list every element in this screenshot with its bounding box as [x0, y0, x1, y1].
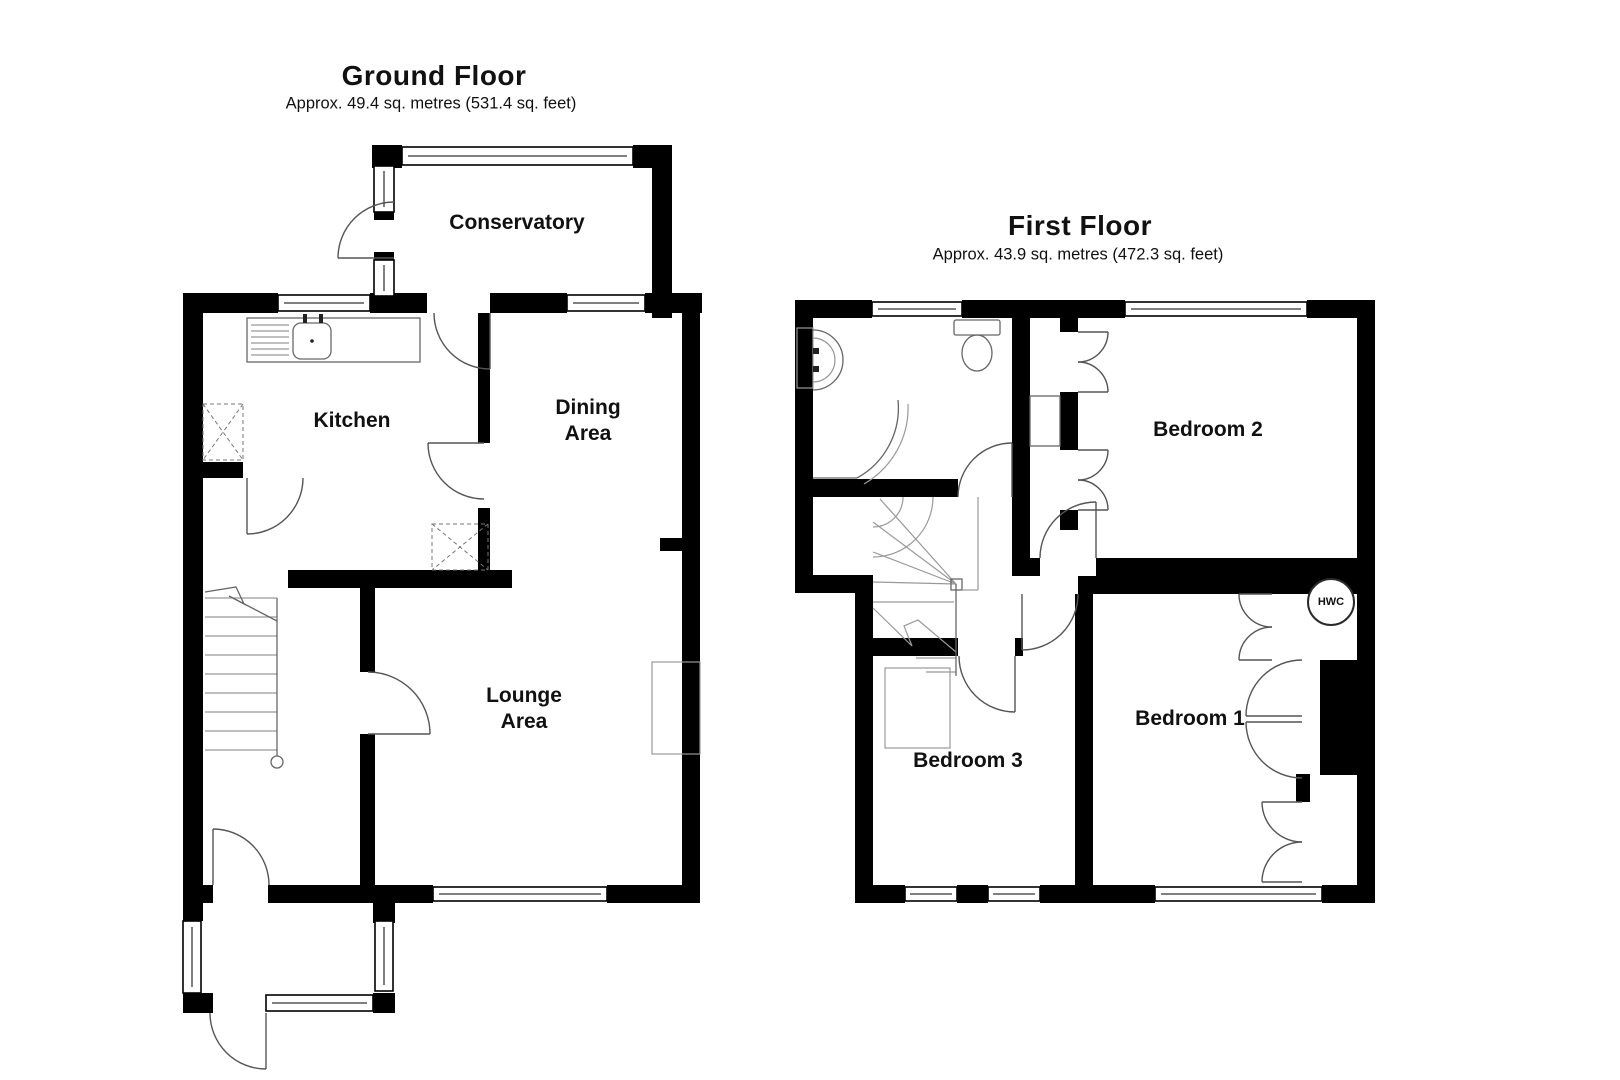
bedroom1-closet-doors — [1246, 660, 1302, 882]
room-label-bedroom-3: Bedroom 3 — [913, 748, 1023, 774]
room-label-dining-area: Dining Area — [555, 395, 620, 448]
hwc-cupboard-doors — [1239, 594, 1272, 660]
ground-floor-stairs — [205, 587, 283, 768]
kitchen-hall-door-arc — [247, 478, 303, 534]
room-label-bedroom-2: Bedroom 2 — [1153, 417, 1263, 443]
bathroom-shower — [813, 400, 908, 484]
bathroom-basin — [813, 330, 843, 390]
bedroom1-door-arc — [1022, 594, 1078, 650]
bedroom3-door-arc — [959, 656, 1015, 712]
ground-floor-title: Ground Floor — [342, 60, 527, 92]
front-entrance-door-arc — [210, 1013, 266, 1069]
room-label-bedroom-1: Bedroom 1 — [1135, 706, 1245, 732]
first-floor-plan — [795, 300, 1375, 903]
hwc-cylinder-icon: HWC — [1307, 578, 1355, 626]
ground-floor-area: Approx. 49.4 sq. metres (531.4 sq. feet) — [286, 95, 577, 114]
room-label-lounge-area: Lounge Area — [486, 683, 562, 736]
first-floor-title: First Floor — [1008, 210, 1152, 242]
floorplan-page: Ground Floor Approx. 49.4 sq. metres (53… — [0, 0, 1620, 1080]
hall-door-arc — [213, 829, 269, 885]
appliance-space-left — [203, 404, 243, 460]
room-label-kitchen: Kitchen — [313, 408, 390, 434]
room-label-conservatory: Conservatory — [449, 210, 584, 236]
floorplan-drawing — [0, 0, 1620, 1080]
lounge-door-arc — [368, 672, 430, 734]
ground-floor-plan — [183, 145, 702, 1069]
kitchen-sink — [247, 314, 420, 362]
bathroom-toilet — [954, 320, 1000, 371]
kitchen-dining-door-arc — [428, 443, 484, 499]
first-floor-area: Approx. 43.9 sq. metres (472.3 sq. feet) — [933, 246, 1224, 265]
bathroom-door-arc — [958, 443, 1012, 497]
bedroom3-bulkhead — [885, 668, 950, 748]
ground-floor-walls — [183, 145, 702, 1013]
